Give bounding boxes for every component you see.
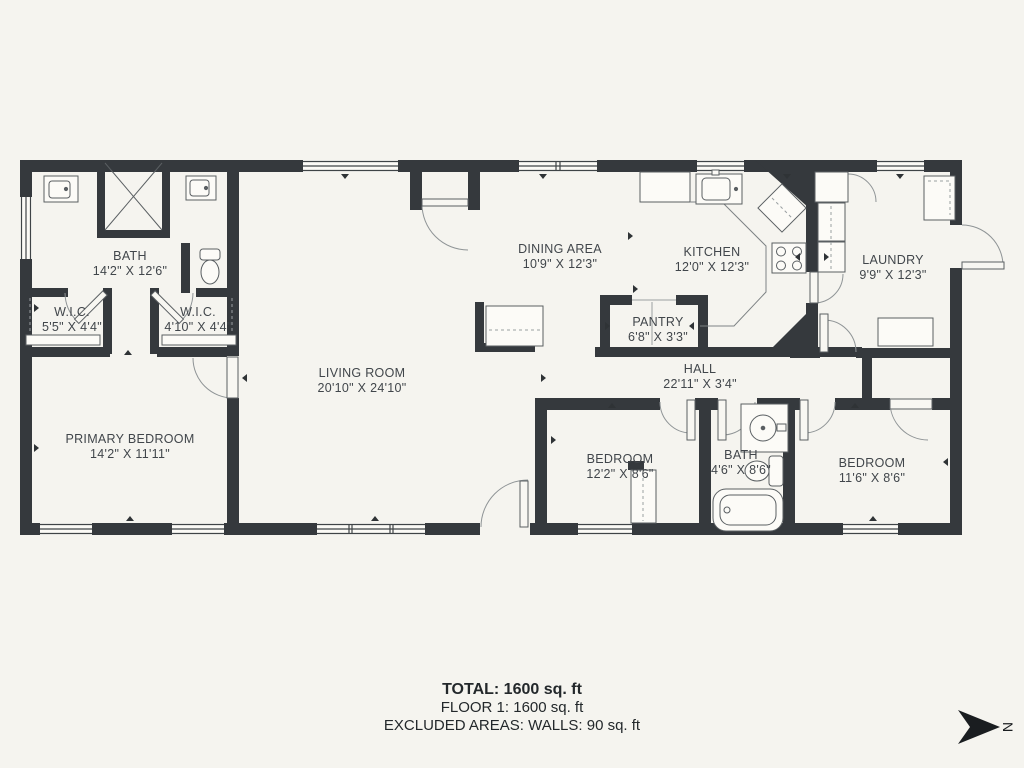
floor-plan-page: N BATH 14'2" X 12'6" W.I.C. 5'5" X 4'4" … (0, 0, 1024, 768)
floor-area: FLOOR 1: 1600 sq. ft (0, 699, 1024, 717)
floor-plan-drawing: N (0, 0, 1024, 768)
toilet-icon (745, 456, 783, 486)
excluded-area: EXCLUDED AREAS: WALLS: 90 sq. ft (0, 717, 1024, 735)
door-gaps (227, 225, 962, 535)
closet-shelf (26, 298, 236, 345)
toilet-icon (200, 249, 220, 284)
bedroom-closet (631, 470, 656, 523)
washer-dryer-icon (815, 172, 955, 346)
total-area: TOTAL: 1600 sq. ft (0, 681, 1024, 699)
shower-icon (105, 163, 162, 230)
kitchen-sink-icon (696, 170, 742, 204)
bathroom-sink-icon (186, 176, 216, 200)
area-summary: TOTAL: 1600 sq. ft FLOOR 1: 1600 sq. ft … (0, 681, 1024, 735)
vanity-sink-icon (741, 404, 788, 452)
stove-icon (772, 243, 806, 273)
dining-cabinet (486, 306, 543, 346)
bathtub-icon (713, 489, 783, 531)
bathroom-sink-icon (44, 176, 78, 202)
pantry-shelf (632, 300, 676, 345)
